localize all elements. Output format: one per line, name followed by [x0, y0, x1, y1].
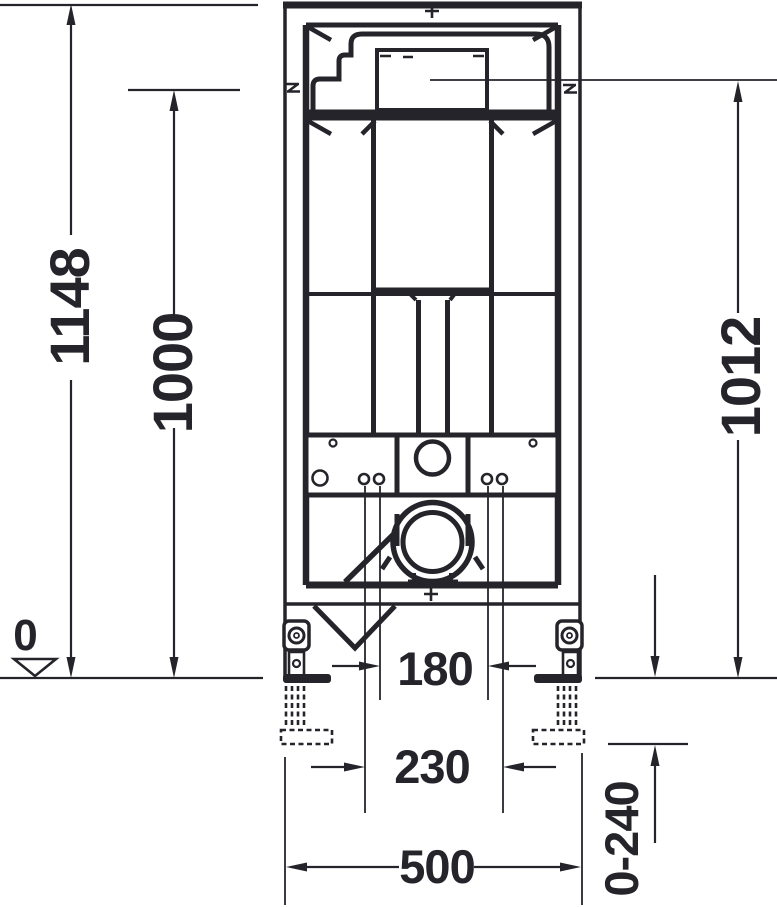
cistern-body: [374, 117, 492, 290]
flush-bend-opening: [416, 442, 449, 475]
fixing-bolt-hole-inner-right: [482, 474, 492, 484]
flush-pipe: [419, 300, 448, 433]
floor-level-triangle-icon: [14, 659, 56, 676]
support-foot-right: [534, 621, 582, 683]
center-mark-bottom-icon: [424, 587, 438, 601]
foot-extension-dashed-left: [281, 686, 332, 744]
dimension-labels: 1148 1000 1012 0 180 230 500 0-240: [13, 248, 772, 896]
fixing-bolt-hole-outer-right: [497, 474, 507, 484]
foot-extension-dashed-right: [533, 686, 584, 744]
support-bar-gussets: [308, 121, 556, 134]
fixing-bolt-hole-inner-left: [374, 474, 384, 484]
fixing-hole: [330, 440, 337, 447]
fixing-hole: [530, 440, 537, 447]
label-frame-width: 500: [399, 840, 474, 893]
label-floor-zero-level: 0: [13, 611, 36, 660]
support-foot-left: [283, 621, 331, 683]
fixing-bolt-hole-outer-left: [359, 474, 369, 484]
drain-socket-inner: [403, 513, 462, 572]
fixing-hole: [313, 471, 328, 486]
drain-pipe-outlet-v: [314, 606, 395, 648]
frame-assembly: [281, 4, 584, 744]
installation-frame-drawing: 1148 1000 1012 0 180 230 500 0-240: [0, 0, 777, 907]
label-leg-adjustment-range: 0-240: [595, 781, 648, 896]
dim-leg-adjustment: [651, 575, 660, 843]
technical-drawing-sheet: 1148 1000 1012 0 180 230 500 0-240: [0, 0, 777, 907]
z-mark-icon-right: [563, 85, 577, 93]
z-mark-icon-left: [286, 84, 300, 92]
label-overall-height: 1148: [38, 248, 101, 366]
label-fixing-spacing-inner: 180: [397, 642, 472, 695]
label-upper-fixing-height: 1000: [141, 313, 204, 434]
cistern-struts: [374, 294, 492, 435]
label-fixing-spacing-outer: 230: [394, 740, 469, 793]
label-actuator-center-height: 1012: [709, 317, 772, 438]
